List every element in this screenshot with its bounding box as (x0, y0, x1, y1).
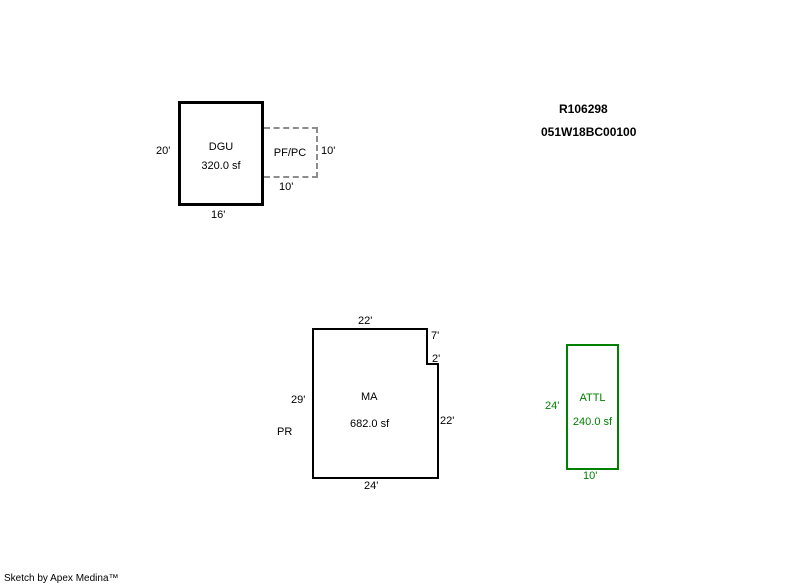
ma-notch-step-dimension: 2' (432, 354, 440, 365)
ma-right-dimension: 22' (440, 416, 454, 427)
attl-area-label: 240.0 sf (568, 417, 617, 428)
pfpc-bottom-dimension: 10' (279, 182, 293, 193)
pfpc-right-dimension: 10' (321, 146, 335, 157)
attl-code-label: ATTL (568, 393, 617, 404)
ma-top-dimension: 22' (358, 316, 372, 327)
ma-code-label: MA (361, 392, 378, 403)
attl-bottom-dimension: 10' (583, 471, 597, 482)
ma-left-dimension: 29' (291, 395, 305, 406)
dgu-left-dimension: 20' (156, 146, 170, 157)
pfpc-structure-outline: PF/PC (264, 127, 318, 178)
pr-adjacent-label: PR (277, 427, 292, 438)
dgu-area-label: 320.0 sf (181, 161, 261, 172)
dgu-code-label: DGU (181, 142, 261, 153)
ma-footprint-outline (0, 0, 800, 587)
ma-area-label: 682.0 sf (350, 419, 389, 430)
sketch-credit: Sketch by Apex Medina™ (4, 573, 119, 584)
dgu-structure-outline: DGU 320.0 sf (178, 101, 264, 206)
attl-left-dimension: 24' (545, 401, 559, 412)
dgu-bottom-dimension: 16' (211, 210, 225, 221)
ma-bottom-dimension: 24' (364, 481, 378, 492)
pfpc-code-label: PF/PC (274, 147, 306, 159)
parcel-id: 051W18BC00100 (541, 126, 636, 138)
ma-notch-upper-dimension: 7' (431, 331, 439, 342)
account-id: R106298 (559, 103, 608, 115)
ma-polygon (313, 329, 438, 478)
attl-structure-outline: ATTL 240.0 sf (566, 344, 619, 470)
sketch-canvas: DGU 320.0 sf 20' 16' PF/PC 10' 10' R1062… (0, 0, 800, 587)
